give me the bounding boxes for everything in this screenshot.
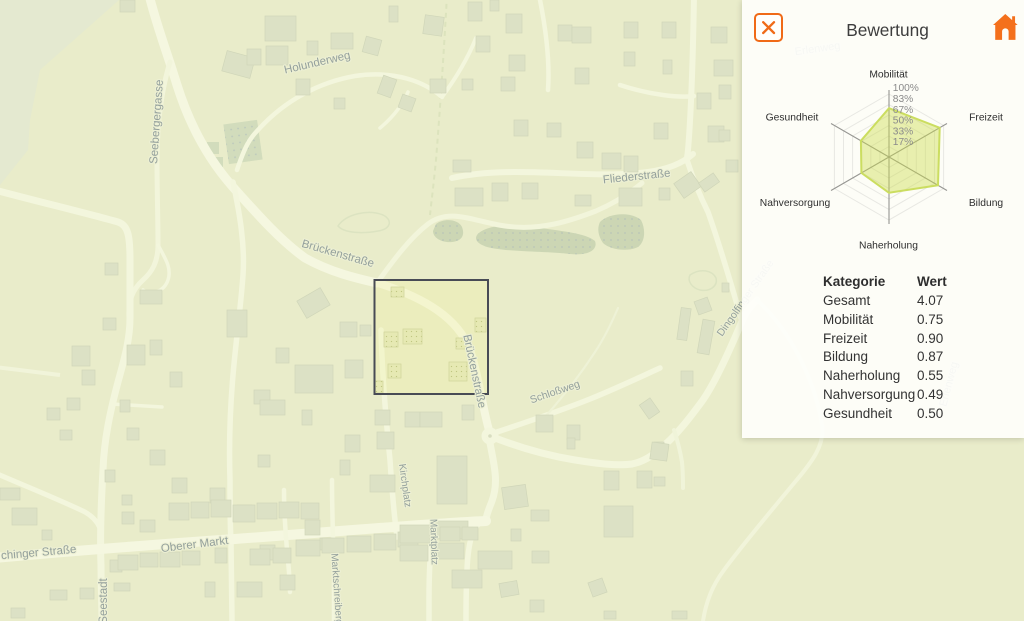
svg-text:67%: 67% [893, 105, 913, 116]
svg-text:83%: 83% [893, 94, 913, 105]
svg-text:Schloßweg: Schloßweg [529, 378, 582, 406]
svg-text:Mobilität: Mobilität [869, 70, 907, 81]
svg-text:100%: 100% [893, 83, 919, 94]
svg-text:Marktplatz: Marktplatz [427, 519, 440, 565]
svg-text:Naherholung: Naherholung [859, 241, 918, 252]
svg-text:Seestadt: Seestadt [98, 578, 110, 621]
svg-text:chinger Straße: chinger Straße [1, 544, 77, 563]
svg-text:50%: 50% [893, 116, 913, 127]
svg-text:Bildung: Bildung [969, 198, 1004, 209]
svg-text:Marktschreiberga: Marktschreiberga [328, 553, 344, 621]
svg-text:Kirchplatz: Kirchplatz [396, 463, 413, 508]
svg-text:Freizeit: Freizeit [969, 113, 1003, 124]
svg-text:Seebergergasse: Seebergergasse [148, 79, 166, 164]
svg-text:17%: 17% [893, 137, 913, 148]
svg-text:Gesundheit: Gesundheit [766, 113, 819, 124]
svg-text:33%: 33% [893, 126, 913, 137]
svg-text:Nahversorgung: Nahversorgung [760, 198, 831, 209]
svg-text:Fliederstraße: Fliederstraße [602, 168, 671, 187]
